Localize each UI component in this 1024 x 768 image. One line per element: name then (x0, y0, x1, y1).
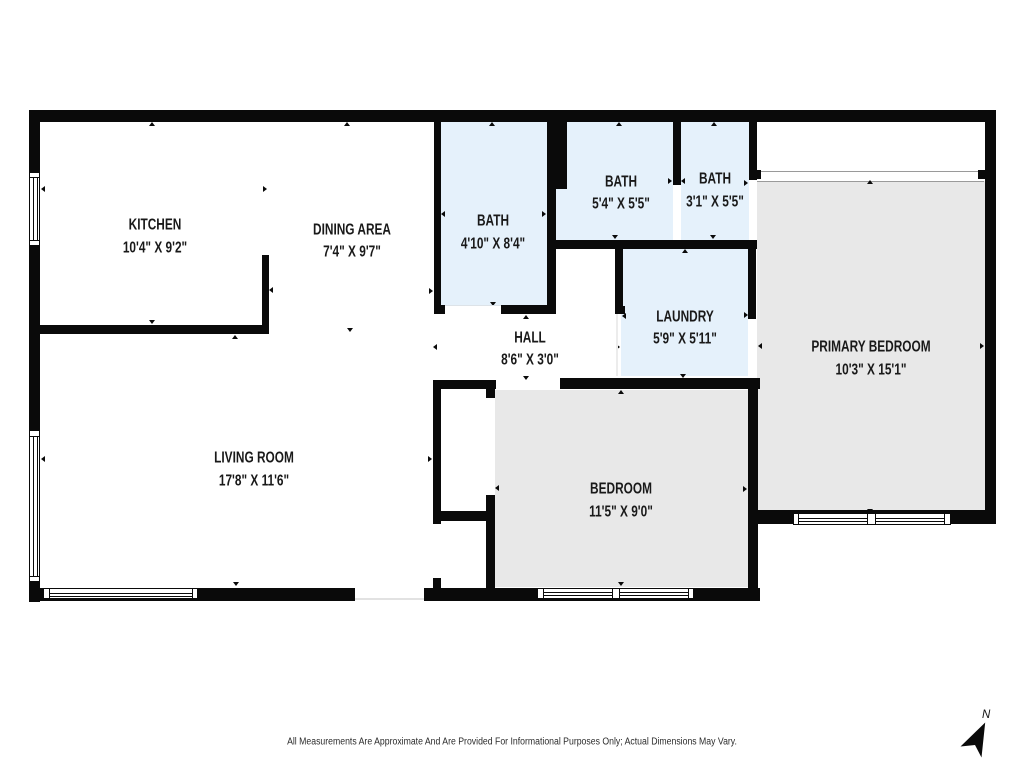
svg-text:N: N (982, 709, 991, 721)
